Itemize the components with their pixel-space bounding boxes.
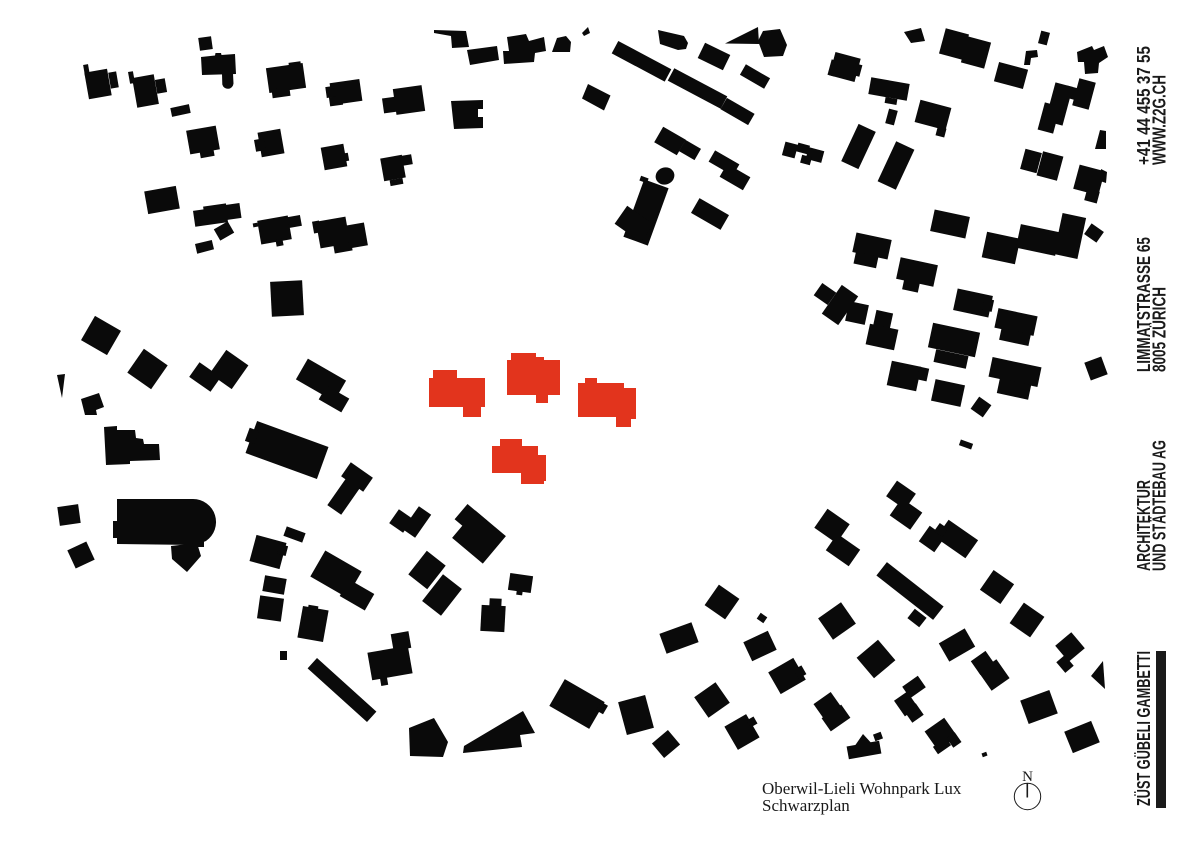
svg-text:WWW.Z2G.CH: WWW.Z2G.CH (1149, 75, 1170, 165)
svg-text:UND STÄDTEBAU AG: UND STÄDTEBAU AG (1149, 440, 1170, 571)
svg-text:ZÜST GÜBELI GAMBETTI: ZÜST GÜBELI GAMBETTI (1133, 651, 1154, 806)
svg-text:N: N (1022, 769, 1033, 785)
svg-text:Schwarzplan: Schwarzplan (762, 796, 850, 815)
svg-text:8005 ZÜRICH: 8005 ZÜRICH (1149, 287, 1170, 372)
